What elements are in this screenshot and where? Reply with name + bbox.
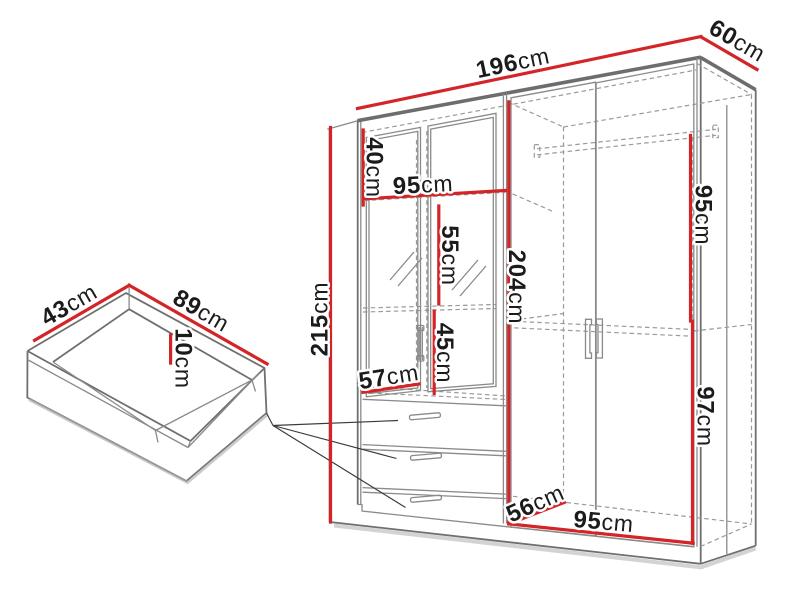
svg-text:204cm: 204cm — [503, 250, 530, 325]
svg-text:55cm: 55cm — [436, 225, 463, 286]
svg-text:40cm: 40cm — [361, 137, 388, 198]
svg-text:97cm: 97cm — [692, 386, 719, 447]
svg-text:95cm: 95cm — [392, 170, 454, 200]
svg-text:215cm: 215cm — [307, 282, 334, 357]
svg-text:45cm: 45cm — [431, 323, 458, 384]
svg-text:95cm: 95cm — [572, 506, 635, 538]
svg-text:10cm: 10cm — [170, 328, 197, 389]
svg-text:95cm: 95cm — [690, 185, 717, 246]
